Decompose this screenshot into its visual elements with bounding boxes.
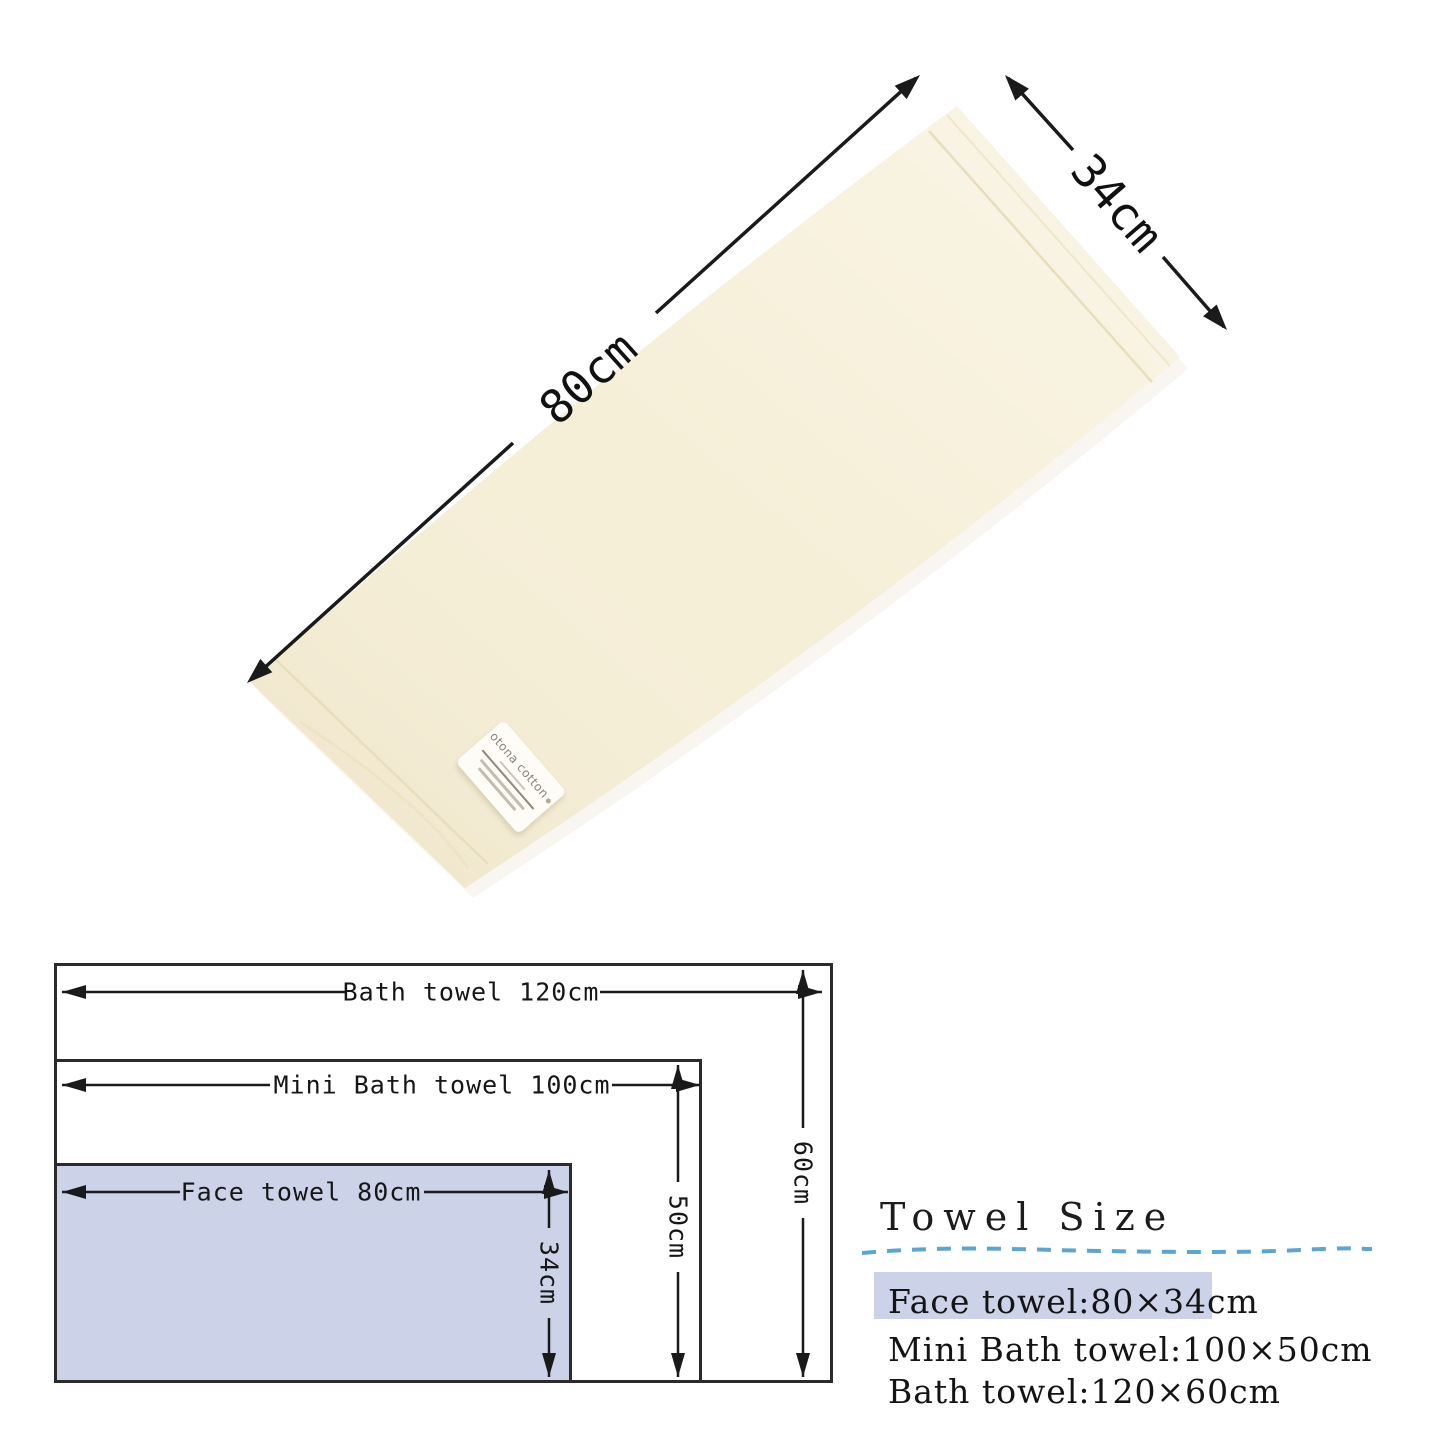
arrowhead-34cm-top bbox=[1005, 75, 1029, 101]
mini-bath-towel-width-label: Mini Bath towel 100cm bbox=[273, 1071, 610, 1100]
mini-bath-towel-height-label: 50cm bbox=[664, 1195, 693, 1259]
size-list-item-mini-bath-towel: Mini Bath towel:100×50cm bbox=[888, 1330, 1373, 1369]
arrow-80cm-segment-upper bbox=[656, 78, 916, 313]
bath-towel-height-label: 60cm bbox=[789, 1141, 818, 1205]
arrowhead-80cm-left bbox=[247, 659, 272, 683]
photo-width-dimension-label: 34cm bbox=[1060, 143, 1173, 262]
towel-fold-crease bbox=[300, 722, 468, 868]
towel-photo bbox=[250, 106, 1188, 898]
arrow-34cm-segment-upper bbox=[1008, 78, 1073, 150]
arrow-34cm-segment-lower bbox=[1163, 257, 1224, 327]
towel-size-product-image: 80cm 34cm otona cotton Bath towel 120cm … bbox=[0, 0, 1445, 1445]
tag-logo-dot-icon bbox=[545, 797, 552, 804]
arrowhead-80cm-right bbox=[895, 75, 920, 99]
size-list-item-bath-towel: Bath towel:120×60cm bbox=[888, 1372, 1281, 1411]
size-panel-title: Towel Size bbox=[880, 1195, 1175, 1239]
towel-hang-tag: otona cotton bbox=[455, 720, 566, 834]
towel-fabric bbox=[250, 106, 1180, 888]
towel-shading bbox=[250, 106, 1180, 888]
face-towel-height-label: 34cm bbox=[535, 1241, 564, 1305]
bath-towel-width-label: Bath towel 120cm bbox=[343, 978, 600, 1007]
photo-length-dimension-label: 80cm bbox=[529, 321, 647, 435]
size-list-item-face-towel: Face towel:80×34cm bbox=[888, 1282, 1259, 1321]
towel-shadow bbox=[258, 118, 1188, 898]
towel-hem-line-bottom bbox=[274, 658, 488, 864]
arrow-80cm-segment-lower bbox=[252, 443, 513, 679]
arrowhead-34cm-bottom bbox=[1203, 305, 1227, 331]
face-towel-width-label: Face towel 80cm bbox=[181, 1178, 422, 1207]
dashed-divider bbox=[862, 1248, 1372, 1253]
